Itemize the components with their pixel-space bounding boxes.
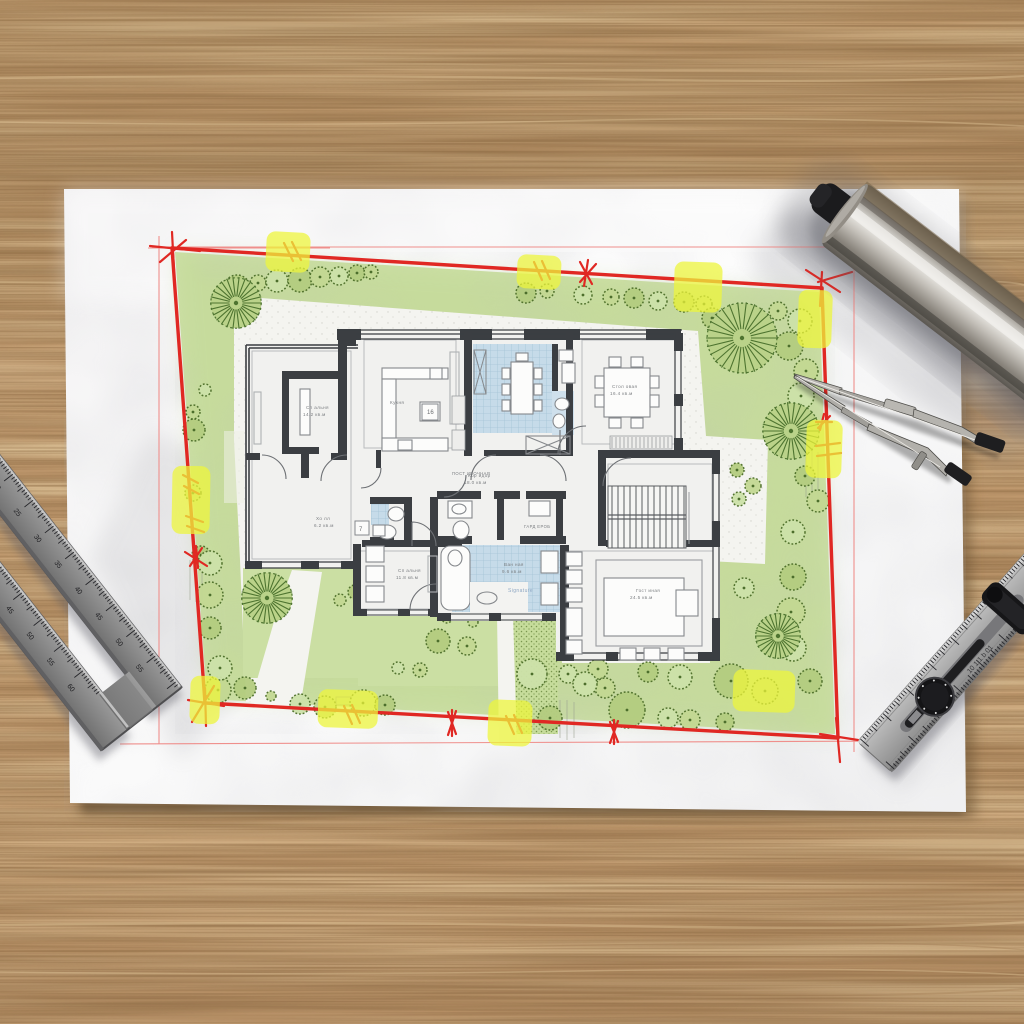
svg-text:11.8 кв.м: 11.8 кв.м [396, 575, 418, 580]
svg-text:Signature: Signature [508, 588, 533, 594]
svg-text:14.2 кв.м: 14.2 кв.м [303, 412, 326, 417]
svg-text:Ван ная: Ван ная [504, 562, 524, 567]
svg-text:Гост иная: Гост иная [636, 588, 660, 593]
svg-text:Хо лл: Хо лл [316, 516, 330, 521]
svg-text:Кор идор: Кор идор [468, 473, 491, 478]
svg-text:16: 16 [427, 410, 434, 416]
svg-text:ГАРД ЕРОБ: ГАРД ЕРОБ [524, 524, 550, 529]
svg-text:Сп альня: Сп альня [306, 405, 329, 410]
svg-text:6.2 кв.м: 6.2 кв.м [314, 523, 334, 528]
svg-text:18.0 кв.м: 18.0 кв.м [464, 480, 487, 485]
svg-text:Сп альня: Сп альня [398, 568, 421, 573]
svg-text:Кухня: Кухня [390, 400, 404, 405]
svg-text:9.6 кв.м: 9.6 кв.м [502, 569, 522, 574]
svg-text:24.5 кв.м: 24.5 кв.м [630, 595, 653, 600]
svg-text:16.4 кв.м: 16.4 кв.м [610, 391, 633, 396]
svg-text:Стол овая: Стол овая [612, 384, 637, 389]
